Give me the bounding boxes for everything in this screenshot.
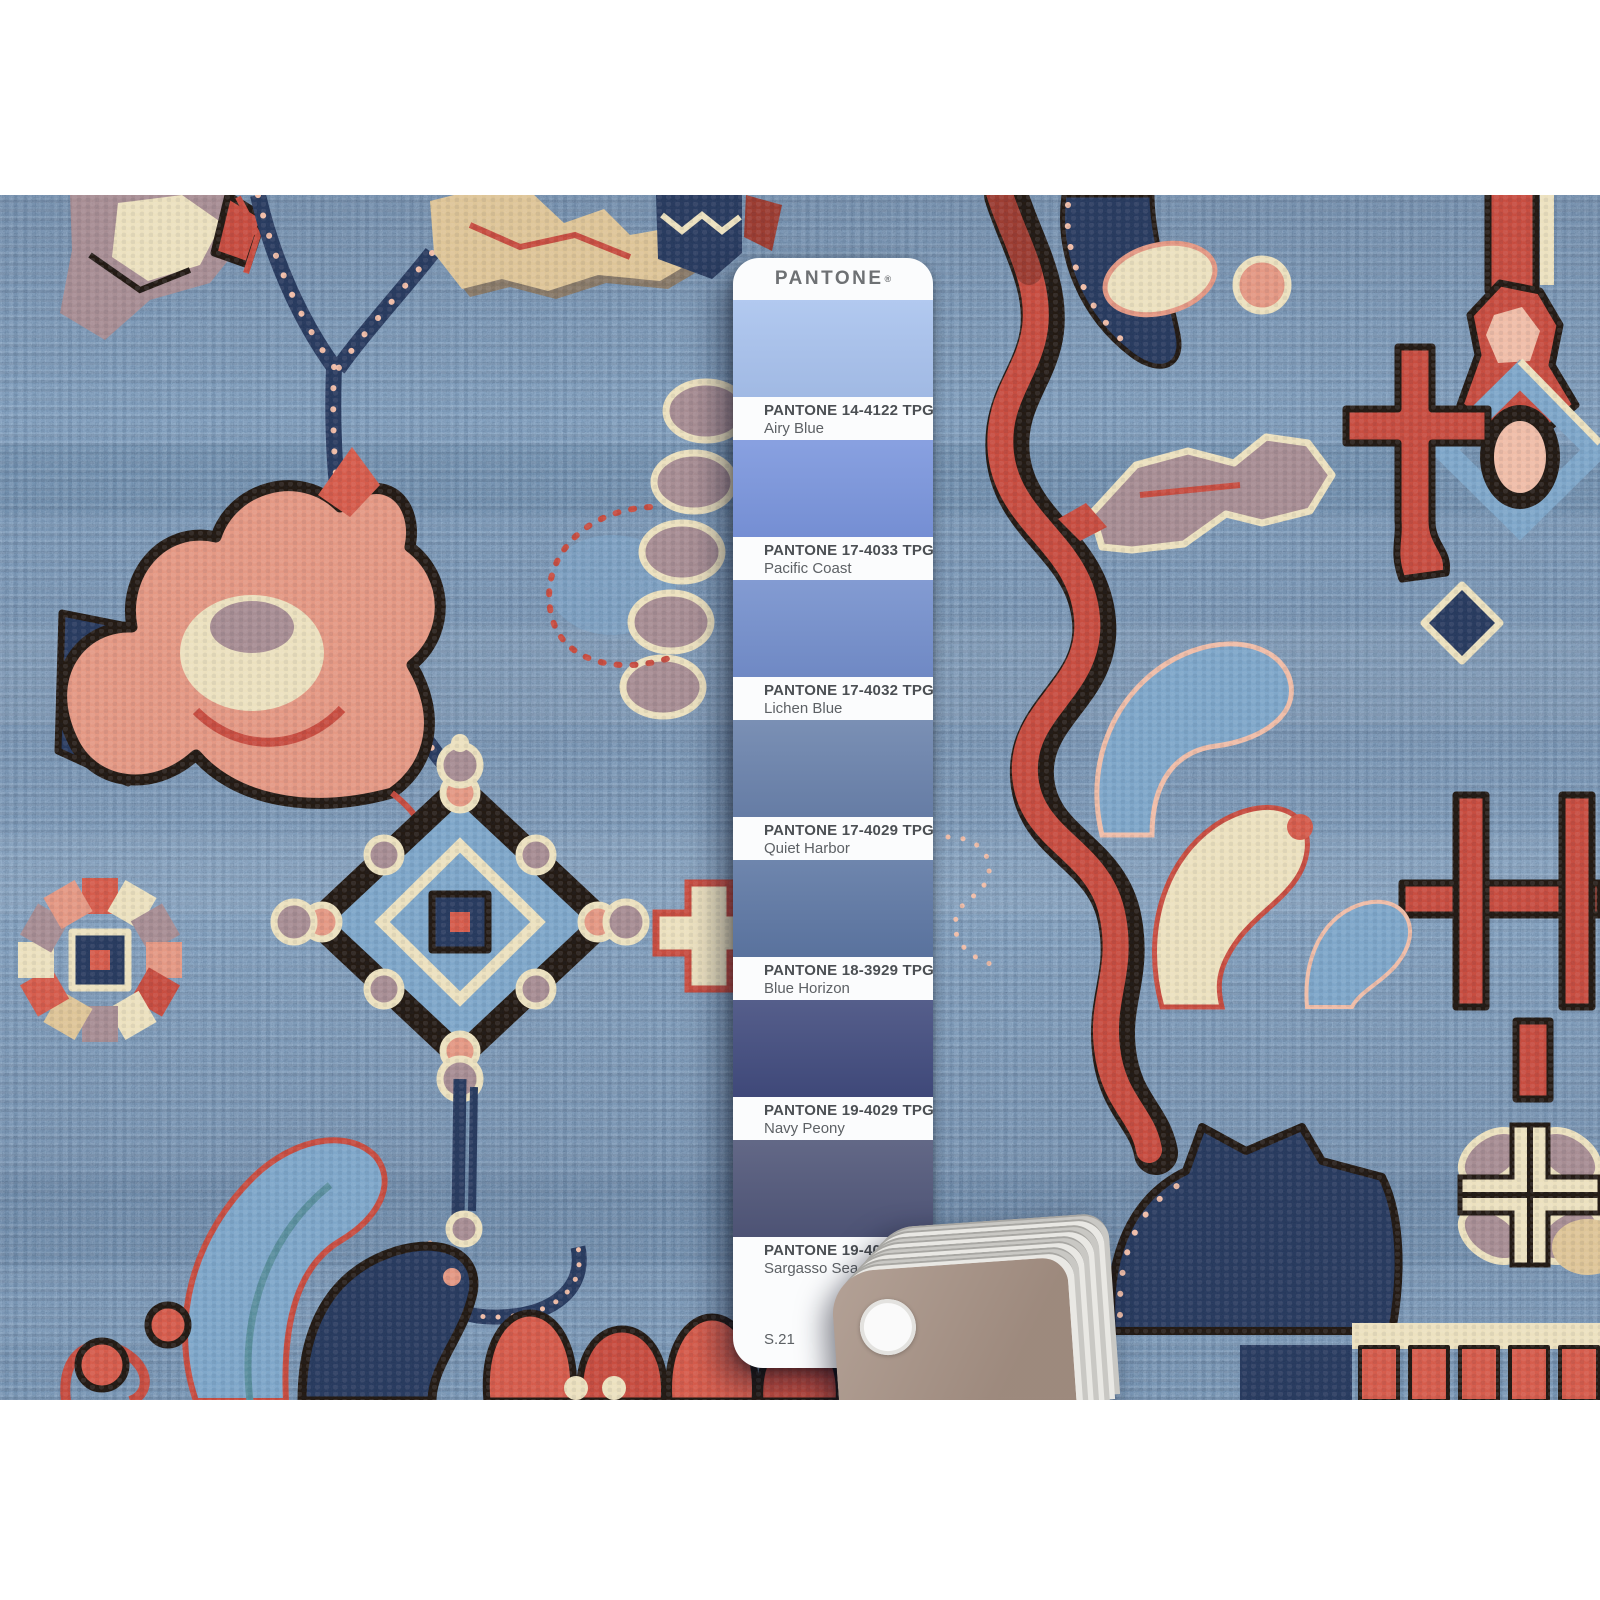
- swatch-code: PANTONE 17-4032 TPG: [764, 682, 933, 700]
- fan-top-card: [830, 1256, 1079, 1400]
- pantone-brand-text: PANTONE: [775, 268, 884, 290]
- rug-photo: PANTONE® PANTONE 14-4122 TPG Airy Blue P…: [0, 195, 1600, 1400]
- swatch-chip-sargasso-sea: [733, 1140, 933, 1237]
- swatch-chip-quiet-harbor: [733, 720, 933, 817]
- swatch-name: Blue Horizon: [764, 980, 933, 998]
- swatch-label-quiet-harbor: PANTONE 17-4029 TPG Quiet Harbor: [733, 817, 933, 860]
- rivet: [858, 1297, 918, 1357]
- page-code: S.21: [764, 1331, 795, 1348]
- swatch-code: PANTONE 17-4033 TPG: [764, 542, 933, 560]
- swatch-chip-pacific-coast: [733, 440, 933, 537]
- swatch-chip-blue-horizon: [733, 860, 933, 957]
- registered-trademark: ®: [885, 274, 892, 284]
- swatch-label-lichen-blue: PANTONE 17-4032 TPG Lichen Blue: [733, 677, 933, 720]
- swatch-name: Pacific Coast: [764, 560, 933, 578]
- swatch-chip-airy-blue: [733, 300, 933, 397]
- swatch-chip-lichen-blue: [733, 580, 933, 677]
- swatch-label-navy-peony: PANTONE 19-4029 TPG Navy Peony: [733, 1097, 933, 1140]
- swatch-label-blue-horizon: PANTONE 18-3929 TPG Blue Horizon: [733, 957, 933, 1000]
- swatch-name: Navy Peony: [764, 1120, 933, 1138]
- swatch-name: Airy Blue: [764, 420, 933, 438]
- swatch-chip-navy-peony: [733, 1000, 933, 1097]
- pantone-logo: PANTONE®: [733, 258, 933, 300]
- pantone-strip: PANTONE® PANTONE 14-4122 TPG Airy Blue P…: [733, 258, 933, 1368]
- swatch-name: Quiet Harbor: [764, 840, 933, 858]
- swatch-code: PANTONE 18-3929 TPG: [764, 962, 933, 980]
- swatch-code: PANTONE 19-4029 TPG: [764, 1102, 933, 1120]
- swatch-label-pacific-coast: PANTONE 17-4033 TPG Pacific Coast: [733, 537, 933, 580]
- swatch-name: Lichen Blue: [764, 700, 933, 718]
- swatch-code: PANTONE 17-4029 TPG: [764, 822, 933, 840]
- swatch-code: PANTONE 14-4122 TPG: [764, 402, 933, 420]
- swatch-label-airy-blue: PANTONE 14-4122 TPG Airy Blue: [733, 397, 933, 440]
